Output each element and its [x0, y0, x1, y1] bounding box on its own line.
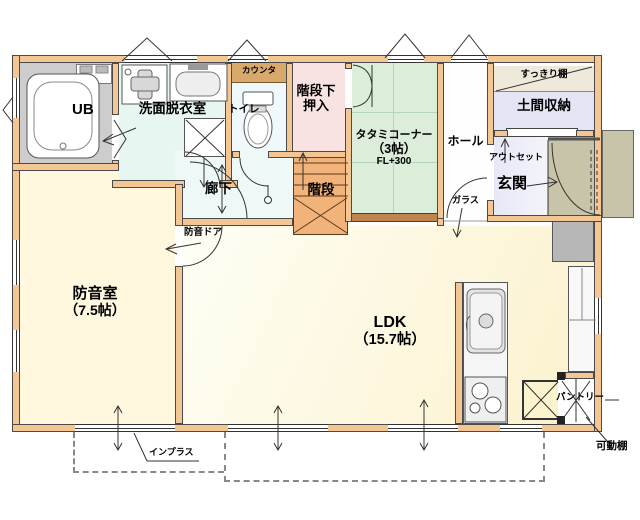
- wall: [175, 184, 183, 226]
- window: [12, 330, 20, 372]
- cupboard: [568, 266, 596, 372]
- kitchen-counter: [463, 282, 508, 424]
- label-ldk: LDK （15.7帖）: [312, 314, 468, 349]
- wall: [232, 151, 240, 158]
- refrigerator: [552, 220, 594, 262]
- floor-plan: UB 洗面脱衣室 カウンタ トイレ 階段下 押入 階段 廊下 タタミコーナー （…: [0, 0, 640, 520]
- wall: [268, 151, 352, 158]
- storage-box: [522, 380, 560, 420]
- label-counter: カウンタ: [232, 66, 286, 76]
- window: [594, 298, 602, 334]
- label-outset: アウトセット: [489, 152, 543, 162]
- label-soundproof-line1: 防音室: [25, 285, 165, 302]
- label-tatami-line2: （3帖）: [348, 142, 440, 156]
- label-ldk-line2: （15.7帖）: [312, 332, 468, 349]
- wall: [494, 130, 508, 137]
- wall: [455, 282, 463, 424]
- window: [228, 424, 328, 432]
- label-ub: UB: [72, 101, 94, 118]
- terrace-outline: [224, 432, 545, 482]
- wall: [437, 218, 444, 226]
- wall: [487, 215, 602, 222]
- wall: [175, 266, 183, 424]
- wall: [112, 63, 119, 115]
- wall: [12, 55, 602, 63]
- label-stairs: 階段: [296, 182, 346, 198]
- wall: [345, 63, 352, 69]
- tatami-step: [345, 213, 444, 222]
- label-corridor: 廊下: [205, 181, 232, 197]
- window: [75, 424, 175, 432]
- tatami-grid-line: [352, 112, 437, 113]
- wall: [565, 372, 594, 379]
- label-understairs-closet: 階段下 押入: [284, 84, 348, 114]
- ub-counter: [76, 64, 112, 84]
- wall: [12, 163, 119, 171]
- label-pantry: パントリー: [556, 393, 604, 404]
- label-tatami-line3: FL+300: [348, 156, 440, 168]
- window: [125, 55, 197, 63]
- linen-cabinet: [184, 118, 226, 157]
- label-understairs-closet-line2: 押入: [284, 99, 348, 114]
- pantry-post: [557, 416, 565, 424]
- window: [451, 55, 488, 63]
- label-clean-shelf: すっきり棚: [496, 70, 592, 81]
- label-soundproof-line2: （7.5帖）: [25, 302, 165, 318]
- window: [12, 240, 20, 285]
- label-understairs-closet-line1: 階段下: [284, 84, 348, 99]
- label-washroom: 洗面脱衣室: [119, 101, 226, 117]
- wall: [225, 63, 232, 188]
- label-tatami: タタミコーナー （3帖） FL+300: [348, 129, 440, 168]
- label-entrance: 玄関: [497, 175, 527, 192]
- label-toilet: トイレ: [228, 103, 260, 115]
- window: [388, 424, 458, 432]
- entrance-tataki: [548, 137, 594, 215]
- label-inplus: インプラス: [149, 447, 194, 457]
- label-tatami-line1: タタミコーナー: [348, 129, 440, 142]
- window: [12, 78, 20, 118]
- wall: [594, 55, 602, 432]
- porch: [602, 130, 634, 218]
- label-soundproof-room: 防音室 （7.5帖）: [25, 285, 165, 318]
- label-glass: ガラス: [452, 195, 479, 205]
- label-movable-shelf: 可動棚: [596, 440, 628, 452]
- label-soundproof-door: 防音ドア: [184, 228, 222, 239]
- window: [228, 55, 268, 63]
- pantry-post: [557, 372, 565, 380]
- window: [500, 424, 542, 432]
- label-hall: ホール: [443, 135, 488, 149]
- label-doma-storage: 土間収納: [494, 98, 594, 114]
- outset-sliding-door: [506, 128, 578, 137]
- label-ldk-line1: LDK: [312, 314, 468, 332]
- window: [388, 55, 424, 63]
- wall: [175, 218, 293, 226]
- wall: [576, 130, 594, 137]
- wall: [487, 63, 494, 145]
